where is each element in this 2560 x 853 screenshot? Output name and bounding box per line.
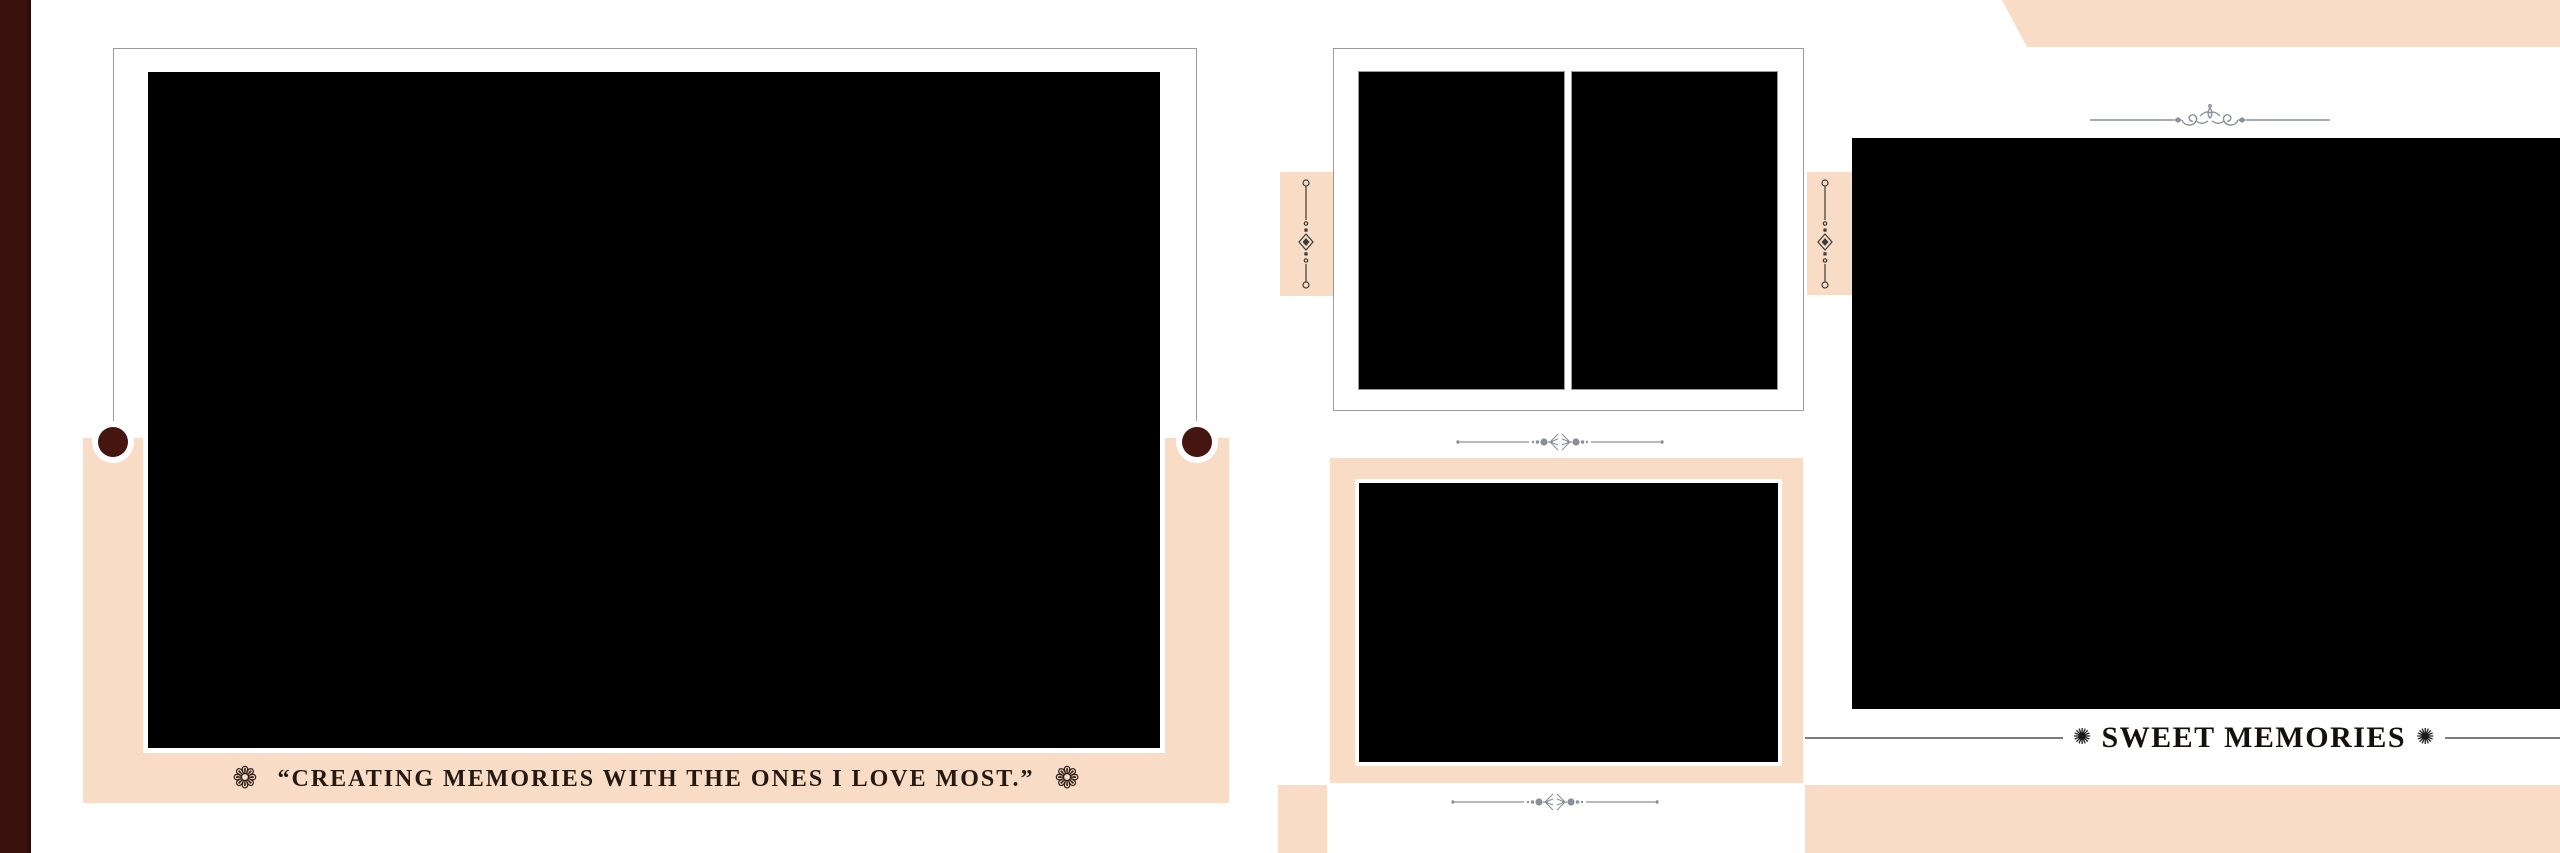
photo-slot-middle-top-right[interactable] [1571,71,1778,390]
right-bottom-peach-block [1805,785,2560,853]
page-binding-strip [0,0,31,853]
album-spread-page: ❁ “CREATING MEMORIES WITH THE ONES I LOV… [0,0,2560,853]
photo-slot-middle-top-left[interactable] [1358,71,1565,390]
top-right-diagonal-band [1988,0,2560,47]
decorative-pin-right [1176,421,1218,463]
banner-rule-left [1805,737,2063,739]
divider-ornament-icon [1455,430,1665,454]
caption-quote-text: “CREATING MEMORIES WITH THE ONES I LOVE … [277,766,1034,793]
left-caption: ❁ “CREATING MEMORIES WITH THE ONES I LOV… [83,760,1229,798]
flower-ornament-icon: ❁ [232,764,257,794]
decorative-pin-left [92,421,134,463]
vertical-ornament-icon [1814,178,1836,290]
starburst-ornament-icon: ✺ [2416,727,2434,749]
sweet-memories-banner: ✺ SWEET MEMORIES ✺ [1805,723,2560,753]
pin-dot-icon [98,427,128,457]
bottom-peach-accent-block [1278,785,1327,853]
flower-ornament-icon: ❁ [1055,764,1080,794]
photo-slot-middle-lower[interactable] [1359,483,1778,762]
page-title: SWEET MEMORIES [2101,721,2406,755]
vertical-ornament-icon [1295,178,1317,290]
photo-slot-left-large[interactable] [148,72,1160,748]
pin-dot-icon [1182,427,1212,457]
starburst-ornament-icon: ✺ [2073,727,2091,749]
divider-ornament-icon [1450,790,1660,814]
photo-slot-right-large[interactable] [1852,138,2560,709]
banner-rule-right [2445,737,2560,739]
scroll-flourish-icon [2090,100,2330,134]
